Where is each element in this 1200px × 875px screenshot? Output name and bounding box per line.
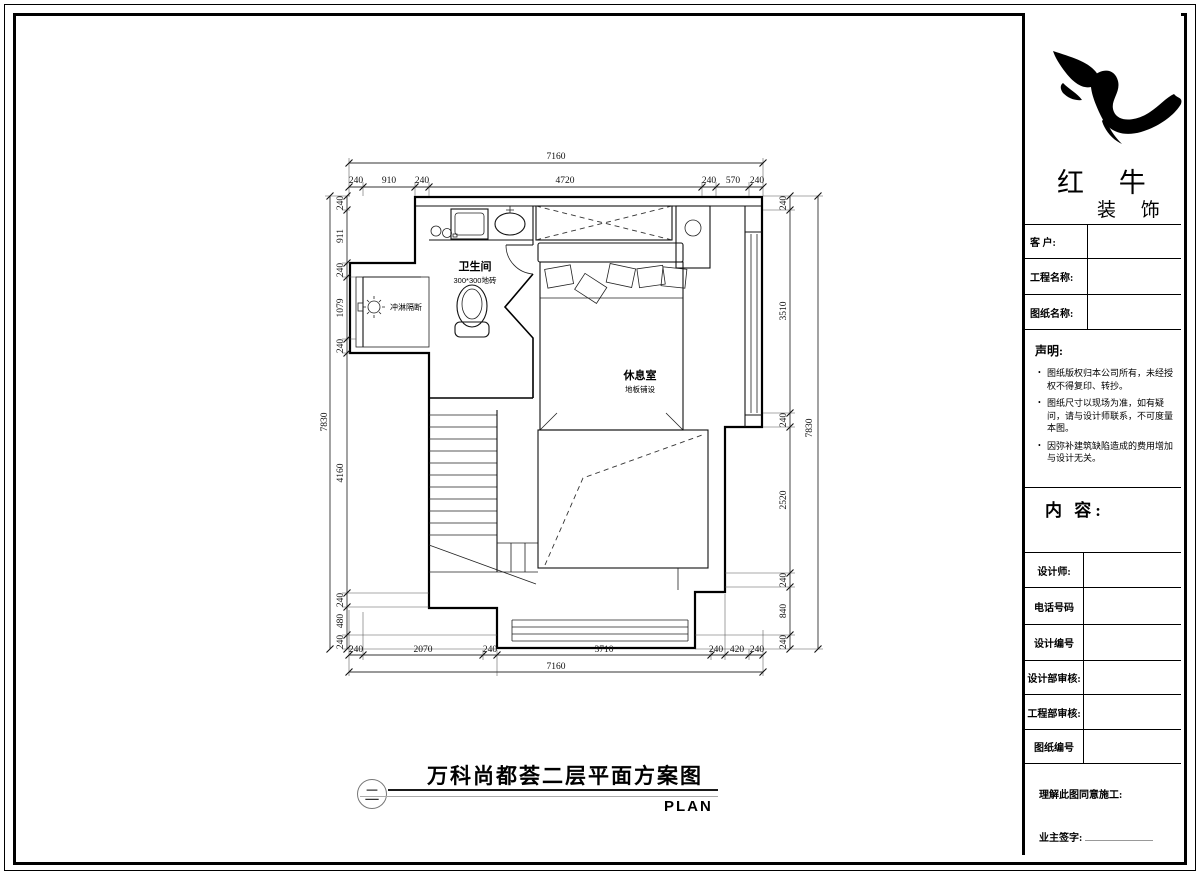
dim-left-seg: 240 xyxy=(336,635,346,650)
title-underline-light xyxy=(360,796,718,797)
field-label: 客 户: xyxy=(1025,225,1088,258)
dim-left-seg: 240 xyxy=(336,339,346,354)
lounge-note: 地板铺设 xyxy=(625,384,655,394)
sheet-number: 二 xyxy=(364,784,379,805)
dim-right-total: 7830 xyxy=(805,418,815,437)
field-value xyxy=(1084,730,1181,763)
bathroom-door xyxy=(506,245,533,274)
bathroom-chamfer-wall xyxy=(429,274,533,398)
bull-logo-icon xyxy=(1025,13,1182,158)
dim-bottom-seg: 3710 xyxy=(595,645,614,655)
field-label: 图纸名称: xyxy=(1025,295,1088,329)
content-label: 内 容: xyxy=(1045,501,1105,520)
dimension-extension-lines xyxy=(325,158,823,676)
field-row-designer: 设计师: xyxy=(1025,553,1181,588)
statement-item: 图纸版权归本公司所有，未经授权不得复印、转抄。 xyxy=(1047,367,1175,392)
construction-agreement-label: 理解此图同意施工: xyxy=(1039,786,1175,801)
dim-top-total: 7160 xyxy=(547,152,566,162)
dim-bottom-seg: 240 xyxy=(750,645,765,655)
signature-line xyxy=(1085,832,1153,841)
shower-label: 冲淋隔断 xyxy=(390,302,422,312)
dim-right-seg: 3510 xyxy=(779,301,789,320)
field-label: 设计师: xyxy=(1025,553,1084,587)
statement-section: 声明: 图纸版权归本公司所有，未经授权不得复印、转抄。 图纸尺寸以现场为准，如有… xyxy=(1025,330,1181,488)
field-label: 工程部审核: xyxy=(1025,695,1084,729)
title-block: 红 牛 装 饰 客 户: 工程名称: 图纸名称: 声明: 图纸版权归本公司所有，… xyxy=(1022,13,1181,855)
field-row-phone: 电话号码 xyxy=(1025,588,1181,625)
owner-signature-label: 业主签字: xyxy=(1039,829,1175,844)
field-row-design-review: 设计部审核: xyxy=(1025,661,1181,695)
dim-left-seg: 1079 xyxy=(336,298,346,317)
statement-list: 图纸版权归本公司所有，未经授权不得复印、转抄。 图纸尺寸以现场为准，如有疑问，请… xyxy=(1035,367,1175,465)
dim-right-seg: 240 xyxy=(779,573,789,588)
field-value xyxy=(1084,588,1181,624)
dim-left-seg: 911 xyxy=(336,229,346,243)
dim-left-seg: 480 xyxy=(336,614,346,629)
dim-left-seg: 240 xyxy=(336,196,346,211)
dim-bottom-seg: 240 xyxy=(349,645,364,655)
floor-plan-drawing: 卫生间 300*300地砖 冲淋隔断 休息室 地板铺设 7160 240 910… xyxy=(0,0,1200,875)
dim-top-seg: 240 xyxy=(349,176,364,186)
dim-left-seg: 240 xyxy=(336,593,346,608)
dim-right-seg: 240 xyxy=(779,635,789,650)
dim-right-seg: 840 xyxy=(779,604,789,619)
title-underline-dark xyxy=(388,789,718,791)
field-value xyxy=(1084,553,1181,587)
drawing-title: 万科尚都荟二层平面方案图 xyxy=(400,760,730,790)
field-label: 设计编号 xyxy=(1025,625,1084,660)
dim-top-seg: 4720 xyxy=(556,176,575,186)
drawing-sheet: 卫生间 300*300地砖 冲淋隔断 休息室 地板铺设 7160 240 910… xyxy=(0,0,1200,875)
field-row-sheet-number: 图纸编号 xyxy=(1025,730,1181,764)
lounge-label: 休息室 xyxy=(623,368,657,382)
cabinet-with-basin xyxy=(676,206,710,268)
laundry-counter xyxy=(429,206,533,245)
plan-label: PLAN xyxy=(664,798,713,815)
dim-bottom-seg: 420 xyxy=(730,645,745,655)
owner-signature-text: 业主签字: xyxy=(1039,833,1082,844)
dim-top-seg: 240 xyxy=(702,176,717,186)
dim-top-seg: 910 xyxy=(382,176,397,186)
dim-left-total: 7830 xyxy=(320,412,330,431)
field-value xyxy=(1084,661,1181,694)
dimension-ticks xyxy=(327,160,822,676)
signoff-section: 理解此图同意施工: 业主签字: xyxy=(1025,764,1181,855)
exterior-wall-outline xyxy=(350,197,762,648)
bay-window xyxy=(512,620,688,641)
field-value xyxy=(1084,695,1181,729)
dim-right-seg: 240 xyxy=(779,196,789,211)
dim-right-seg: 2520 xyxy=(779,490,789,509)
field-row-drawing-name: 图纸名称: xyxy=(1025,295,1181,330)
statement-item: 图纸尺寸以现场为准，如有疑问，请与设计师联系，不可度量本图。 xyxy=(1047,397,1175,435)
dim-bottom-seg: 240 xyxy=(709,645,724,655)
field-label: 设计部审核: xyxy=(1025,661,1084,694)
field-value xyxy=(1088,295,1181,329)
sheet-number-circle: 二 xyxy=(357,779,387,809)
dim-top-seg: 240 xyxy=(415,176,430,186)
shower-top-wall-inner xyxy=(363,277,421,347)
field-row-design-number: 设计编号 xyxy=(1025,625,1181,661)
field-row-project-name: 工程名称: xyxy=(1025,259,1181,295)
company-logo-cell: 红 牛 装 饰 xyxy=(1025,13,1181,225)
dim-bottom-total: 7160 xyxy=(547,662,566,672)
pillows xyxy=(545,263,687,303)
bathroom-note: 300*300地砖 xyxy=(454,275,497,285)
dim-bottom-seg: 2070 xyxy=(414,645,433,655)
toilet xyxy=(455,285,489,337)
dim-top-seg: 240 xyxy=(750,176,765,186)
field-label: 电话号码 xyxy=(1025,588,1084,624)
field-value xyxy=(1088,225,1181,258)
dim-left-seg: 4160 xyxy=(336,463,346,482)
shower-room xyxy=(356,277,429,347)
content-section: 内 容: xyxy=(1025,488,1181,553)
dim-left-seg: 240 xyxy=(336,263,346,278)
bed xyxy=(538,243,687,430)
brand-name-line2: 装 饰 xyxy=(1097,195,1170,222)
stair-void xyxy=(538,430,708,590)
wardrobe xyxy=(536,206,672,240)
field-label: 工程名称: xyxy=(1025,259,1088,294)
dim-right-seg: 240 xyxy=(779,413,789,428)
statement-item: 因弥补建筑缺陷造成的费用增加与设计无关。 xyxy=(1047,440,1175,465)
right-window xyxy=(745,206,762,427)
field-label: 图纸编号 xyxy=(1025,730,1084,763)
dim-bottom-seg: 240 xyxy=(483,645,498,655)
statement-heading: 声明: xyxy=(1035,342,1175,359)
dim-top-seg: 570 xyxy=(726,176,741,186)
field-row-engineering-review: 工程部审核: xyxy=(1025,695,1181,730)
bathroom-label: 卫生间 xyxy=(459,259,492,273)
field-value xyxy=(1088,259,1181,294)
field-row-customer: 客 户: xyxy=(1025,225,1181,259)
staircase xyxy=(429,410,538,584)
field-value xyxy=(1084,625,1181,660)
